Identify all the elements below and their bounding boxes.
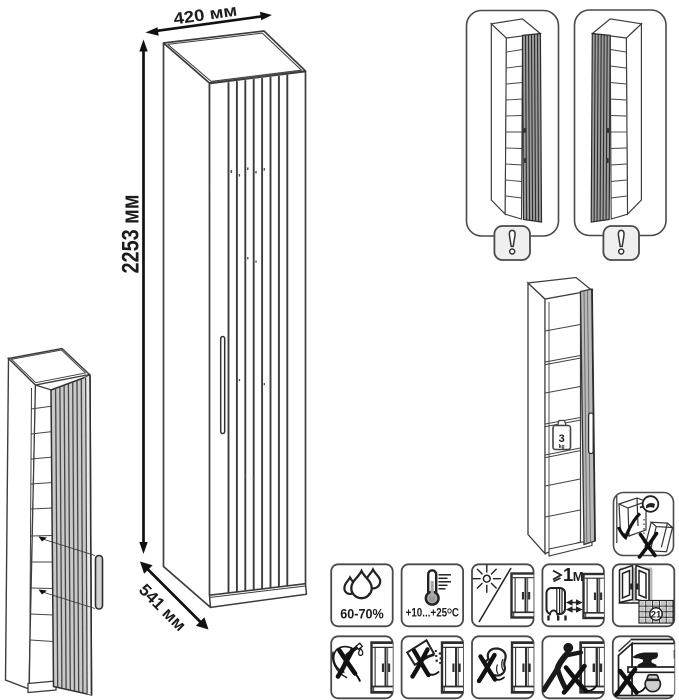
svg-text:kg: kg — [559, 444, 565, 450]
svg-text:21: 21 — [651, 610, 662, 621]
svg-text:60-70%: 60-70% — [340, 606, 384, 622]
svg-text:2253 мм: 2253 мм — [118, 195, 145, 274]
